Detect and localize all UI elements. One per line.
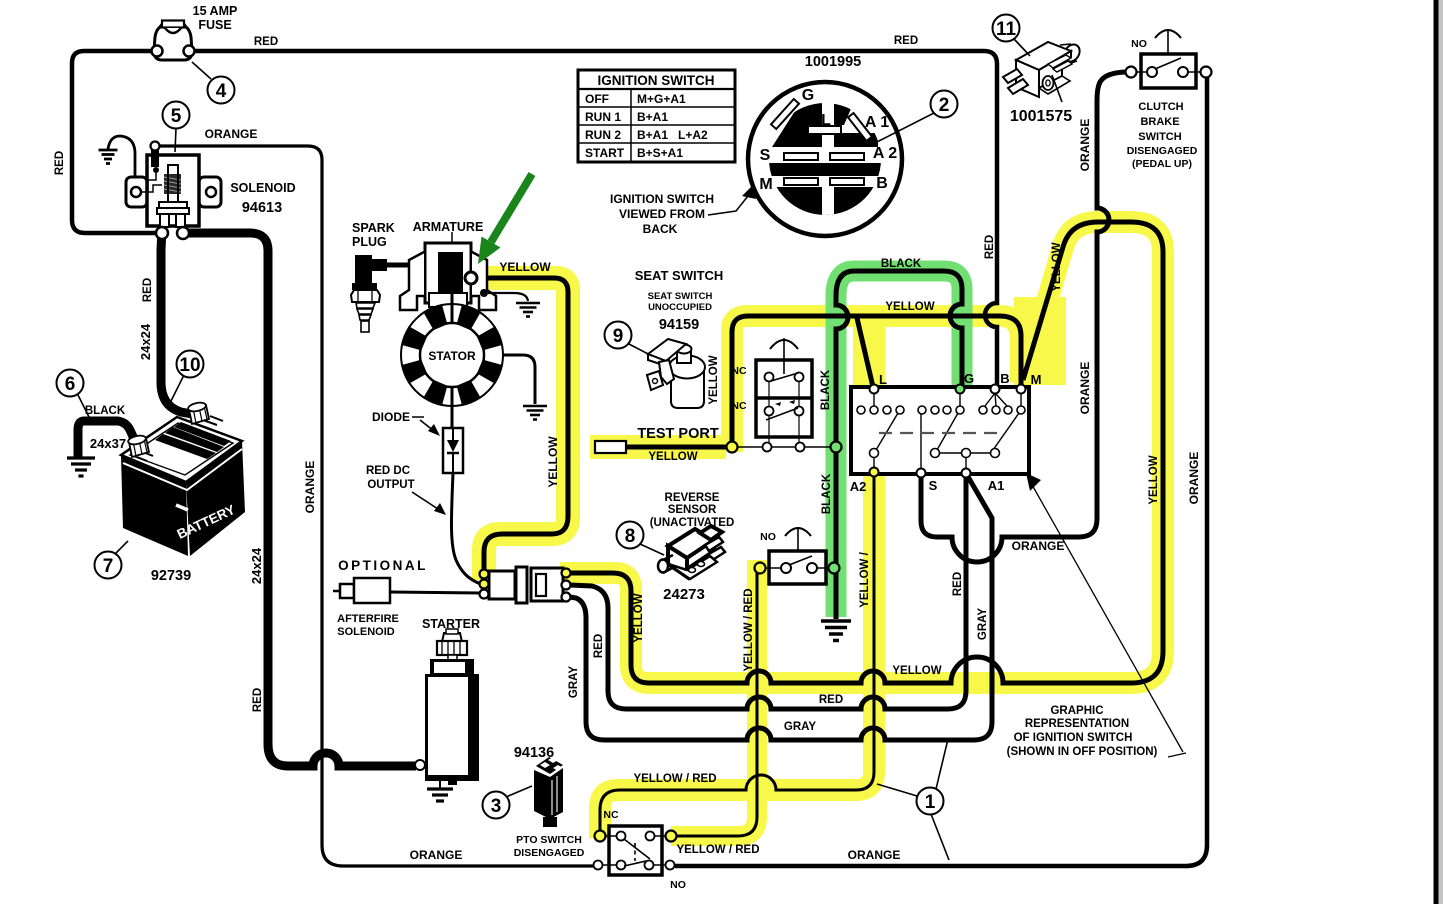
svg-text:PTO SWITCH: PTO SWITCH [516, 834, 582, 846]
svg-text:4: 4 [216, 81, 227, 102]
svg-text:YELLOW: YELLOW [499, 260, 551, 274]
svg-text:YELLOW: YELLOW [892, 665, 941, 677]
svg-text:S: S [760, 147, 771, 164]
svg-text:OFF: OFF [585, 92, 609, 106]
svg-text:RED DC: RED DC [366, 465, 410, 477]
svg-text:RUN 1: RUN 1 [585, 110, 621, 124]
svg-text:A 2: A 2 [873, 145, 897, 162]
svg-text:9: 9 [613, 326, 624, 347]
svg-text:OPTIONAL: OPTIONAL [338, 558, 428, 573]
svg-text:ORANGE: ORANGE [848, 848, 901, 862]
svg-text:1001995: 1001995 [805, 54, 861, 70]
svg-text:UNOCCUPIED: UNOCCUPIED [648, 302, 712, 313]
svg-text:ORANGE: ORANGE [1078, 119, 1092, 172]
svg-text:RED: RED [593, 634, 605, 658]
svg-text:ORANGE: ORANGE [1187, 452, 1201, 505]
svg-text:OF IGNITION SWITCH: OF IGNITION SWITCH [1014, 732, 1133, 744]
svg-text:11: 11 [996, 19, 1017, 40]
svg-text:8: 8 [625, 526, 636, 547]
svg-text:L: L [821, 112, 831, 129]
svg-text:NO: NO [1131, 38, 1147, 50]
svg-text:15 AMP: 15 AMP [193, 4, 238, 18]
svg-text:G: G [802, 87, 814, 104]
svg-text:A1: A1 [988, 478, 1005, 493]
svg-text:M: M [1031, 372, 1042, 387]
svg-text:B: B [1000, 371, 1009, 386]
svg-text:CLUTCH: CLUTCH [1138, 101, 1183, 113]
svg-text:(UNACTIVATED: (UNACTIVATED [650, 517, 735, 529]
svg-text:YELLOW: YELLOW [546, 436, 560, 488]
svg-text:RUN 2: RUN 2 [585, 128, 621, 142]
svg-text:1: 1 [925, 792, 936, 813]
svg-text:6: 6 [65, 374, 76, 395]
svg-text:RED: RED [894, 35, 918, 47]
svg-text:YELLOW / RED: YELLOW / RED [743, 588, 755, 671]
svg-text:94613: 94613 [242, 200, 282, 216]
svg-text:YELLOW: YELLOW [633, 593, 645, 642]
svg-text:B: B [876, 175, 888, 192]
svg-text:S: S [929, 478, 938, 493]
svg-text:YELLOW: YELLOW [1051, 242, 1063, 291]
svg-text:DISENGAGED: DISENGAGED [514, 847, 585, 859]
svg-text:NC: NC [731, 365, 747, 377]
svg-text:ORANGE: ORANGE [1078, 362, 1092, 415]
svg-text:1001575: 1001575 [1010, 108, 1072, 125]
svg-text:10: 10 [179, 355, 200, 376]
svg-text:IGNITION SWITCH: IGNITION SWITCH [610, 192, 714, 206]
svg-text:BACK: BACK [643, 222, 678, 236]
svg-text:REPRESENTATION: REPRESENTATION [1025, 718, 1129, 730]
svg-text:YELLOW / RED: YELLOW / RED [676, 844, 759, 856]
svg-text:B+A1 L+A2: B+A1 L+A2 [637, 128, 708, 142]
svg-text:YELLOW: YELLOW [708, 355, 720, 404]
svg-text:FUSE: FUSE [198, 18, 231, 32]
svg-text:A 1: A 1 [865, 114, 889, 131]
svg-text:GRAPHIC: GRAPHIC [1050, 705, 1103, 717]
svg-text:A2: A2 [850, 479, 867, 494]
svg-text:L: L [879, 372, 887, 387]
svg-text:SOLENOID: SOLENOID [337, 626, 395, 638]
svg-text:NC: NC [731, 400, 747, 412]
svg-text:RED: RED [252, 688, 264, 712]
svg-text:5: 5 [171, 106, 182, 127]
svg-text:REVERSE: REVERSE [665, 492, 720, 504]
svg-text:BLACK: BLACK [85, 405, 126, 417]
svg-text:NC: NC [603, 809, 619, 821]
svg-text:OUTPUT: OUTPUT [367, 479, 414, 491]
svg-text:GRAY: GRAY [784, 721, 816, 733]
svg-text:TEST PORT: TEST PORT [637, 426, 719, 442]
svg-text:B+A1: B+A1 [637, 110, 668, 124]
svg-text:GRAY: GRAY [977, 608, 989, 640]
svg-text:SEAT SWITCH: SEAT SWITCH [648, 291, 713, 302]
svg-text:PLUG: PLUG [352, 235, 387, 249]
svg-text:ORANGE: ORANGE [303, 461, 317, 514]
svg-text:ORANGE: ORANGE [410, 848, 463, 862]
svg-text:RED: RED [984, 235, 996, 259]
svg-text:24x24: 24x24 [249, 547, 264, 584]
svg-text:IGNITION SWITCH: IGNITION SWITCH [598, 73, 715, 88]
svg-text:ARMATURE: ARMATURE [413, 220, 484, 234]
svg-text:ORANGE: ORANGE [205, 127, 258, 141]
svg-text:RED: RED [254, 36, 278, 48]
svg-text:RED: RED [952, 572, 964, 596]
svg-text:STARTER: STARTER [422, 617, 480, 631]
svg-text:SPARK: SPARK [352, 221, 395, 235]
svg-text:SOLENOID: SOLENOID [230, 181, 295, 195]
svg-text:VIEWED FROM: VIEWED FROM [619, 207, 705, 221]
svg-text:RED: RED [142, 278, 154, 302]
svg-text:NO: NO [760, 531, 776, 543]
svg-text:(SHOWN IN OFF POSITION): (SHOWN IN OFF POSITION) [1007, 746, 1158, 758]
svg-text:DISENGAGED: DISENGAGED [1127, 145, 1198, 157]
svg-text:DIODE: DIODE [372, 410, 410, 424]
svg-text:YELLOW / RED: YELLOW / RED [633, 773, 716, 785]
svg-text:BLACK: BLACK [821, 473, 833, 514]
svg-text:7: 7 [103, 556, 114, 577]
svg-text:BRAKE: BRAKE [1140, 116, 1179, 128]
svg-text:YELLOW: YELLOW [648, 451, 697, 463]
svg-text:24273: 24273 [663, 586, 705, 603]
svg-text:BLACK: BLACK [820, 369, 832, 410]
svg-text:STATOR: STATOR [428, 349, 476, 363]
svg-text:SWITCH: SWITCH [1138, 131, 1181, 143]
svg-text:24x24: 24x24 [138, 323, 153, 360]
svg-text:YELLOW: YELLOW [885, 301, 934, 313]
svg-text:94136: 94136 [514, 745, 554, 761]
svg-text:YELLOW /: YELLOW / [859, 551, 871, 607]
svg-text:2: 2 [939, 95, 950, 116]
svg-text:START: START [585, 146, 625, 160]
svg-text:24x37: 24x37 [90, 436, 126, 451]
svg-text:SEAT SWITCH: SEAT SWITCH [635, 268, 724, 283]
svg-text:B+S+A1: B+S+A1 [637, 146, 683, 160]
svg-text:RED: RED [54, 151, 66, 175]
svg-text:3: 3 [491, 796, 502, 817]
svg-text:G: G [964, 371, 974, 386]
svg-text:92739: 92739 [151, 568, 191, 584]
svg-text:M+G+A1: M+G+A1 [637, 92, 686, 106]
svg-text:94159: 94159 [659, 317, 699, 333]
svg-text:M: M [759, 176, 772, 193]
svg-text:NO: NO [670, 879, 686, 891]
svg-text:GRAY: GRAY [568, 666, 580, 698]
svg-text:AFTERFIRE: AFTERFIRE [337, 613, 399, 625]
svg-text:RED: RED [819, 694, 843, 706]
svg-text:BLACK: BLACK [881, 258, 922, 270]
svg-text:ORANGE: ORANGE [1012, 539, 1065, 553]
svg-text:YELLOW: YELLOW [1148, 455, 1160, 504]
svg-text:(PEDAL UP): (PEDAL UP) [1132, 158, 1192, 170]
svg-text:SENSOR: SENSOR [668, 504, 717, 516]
